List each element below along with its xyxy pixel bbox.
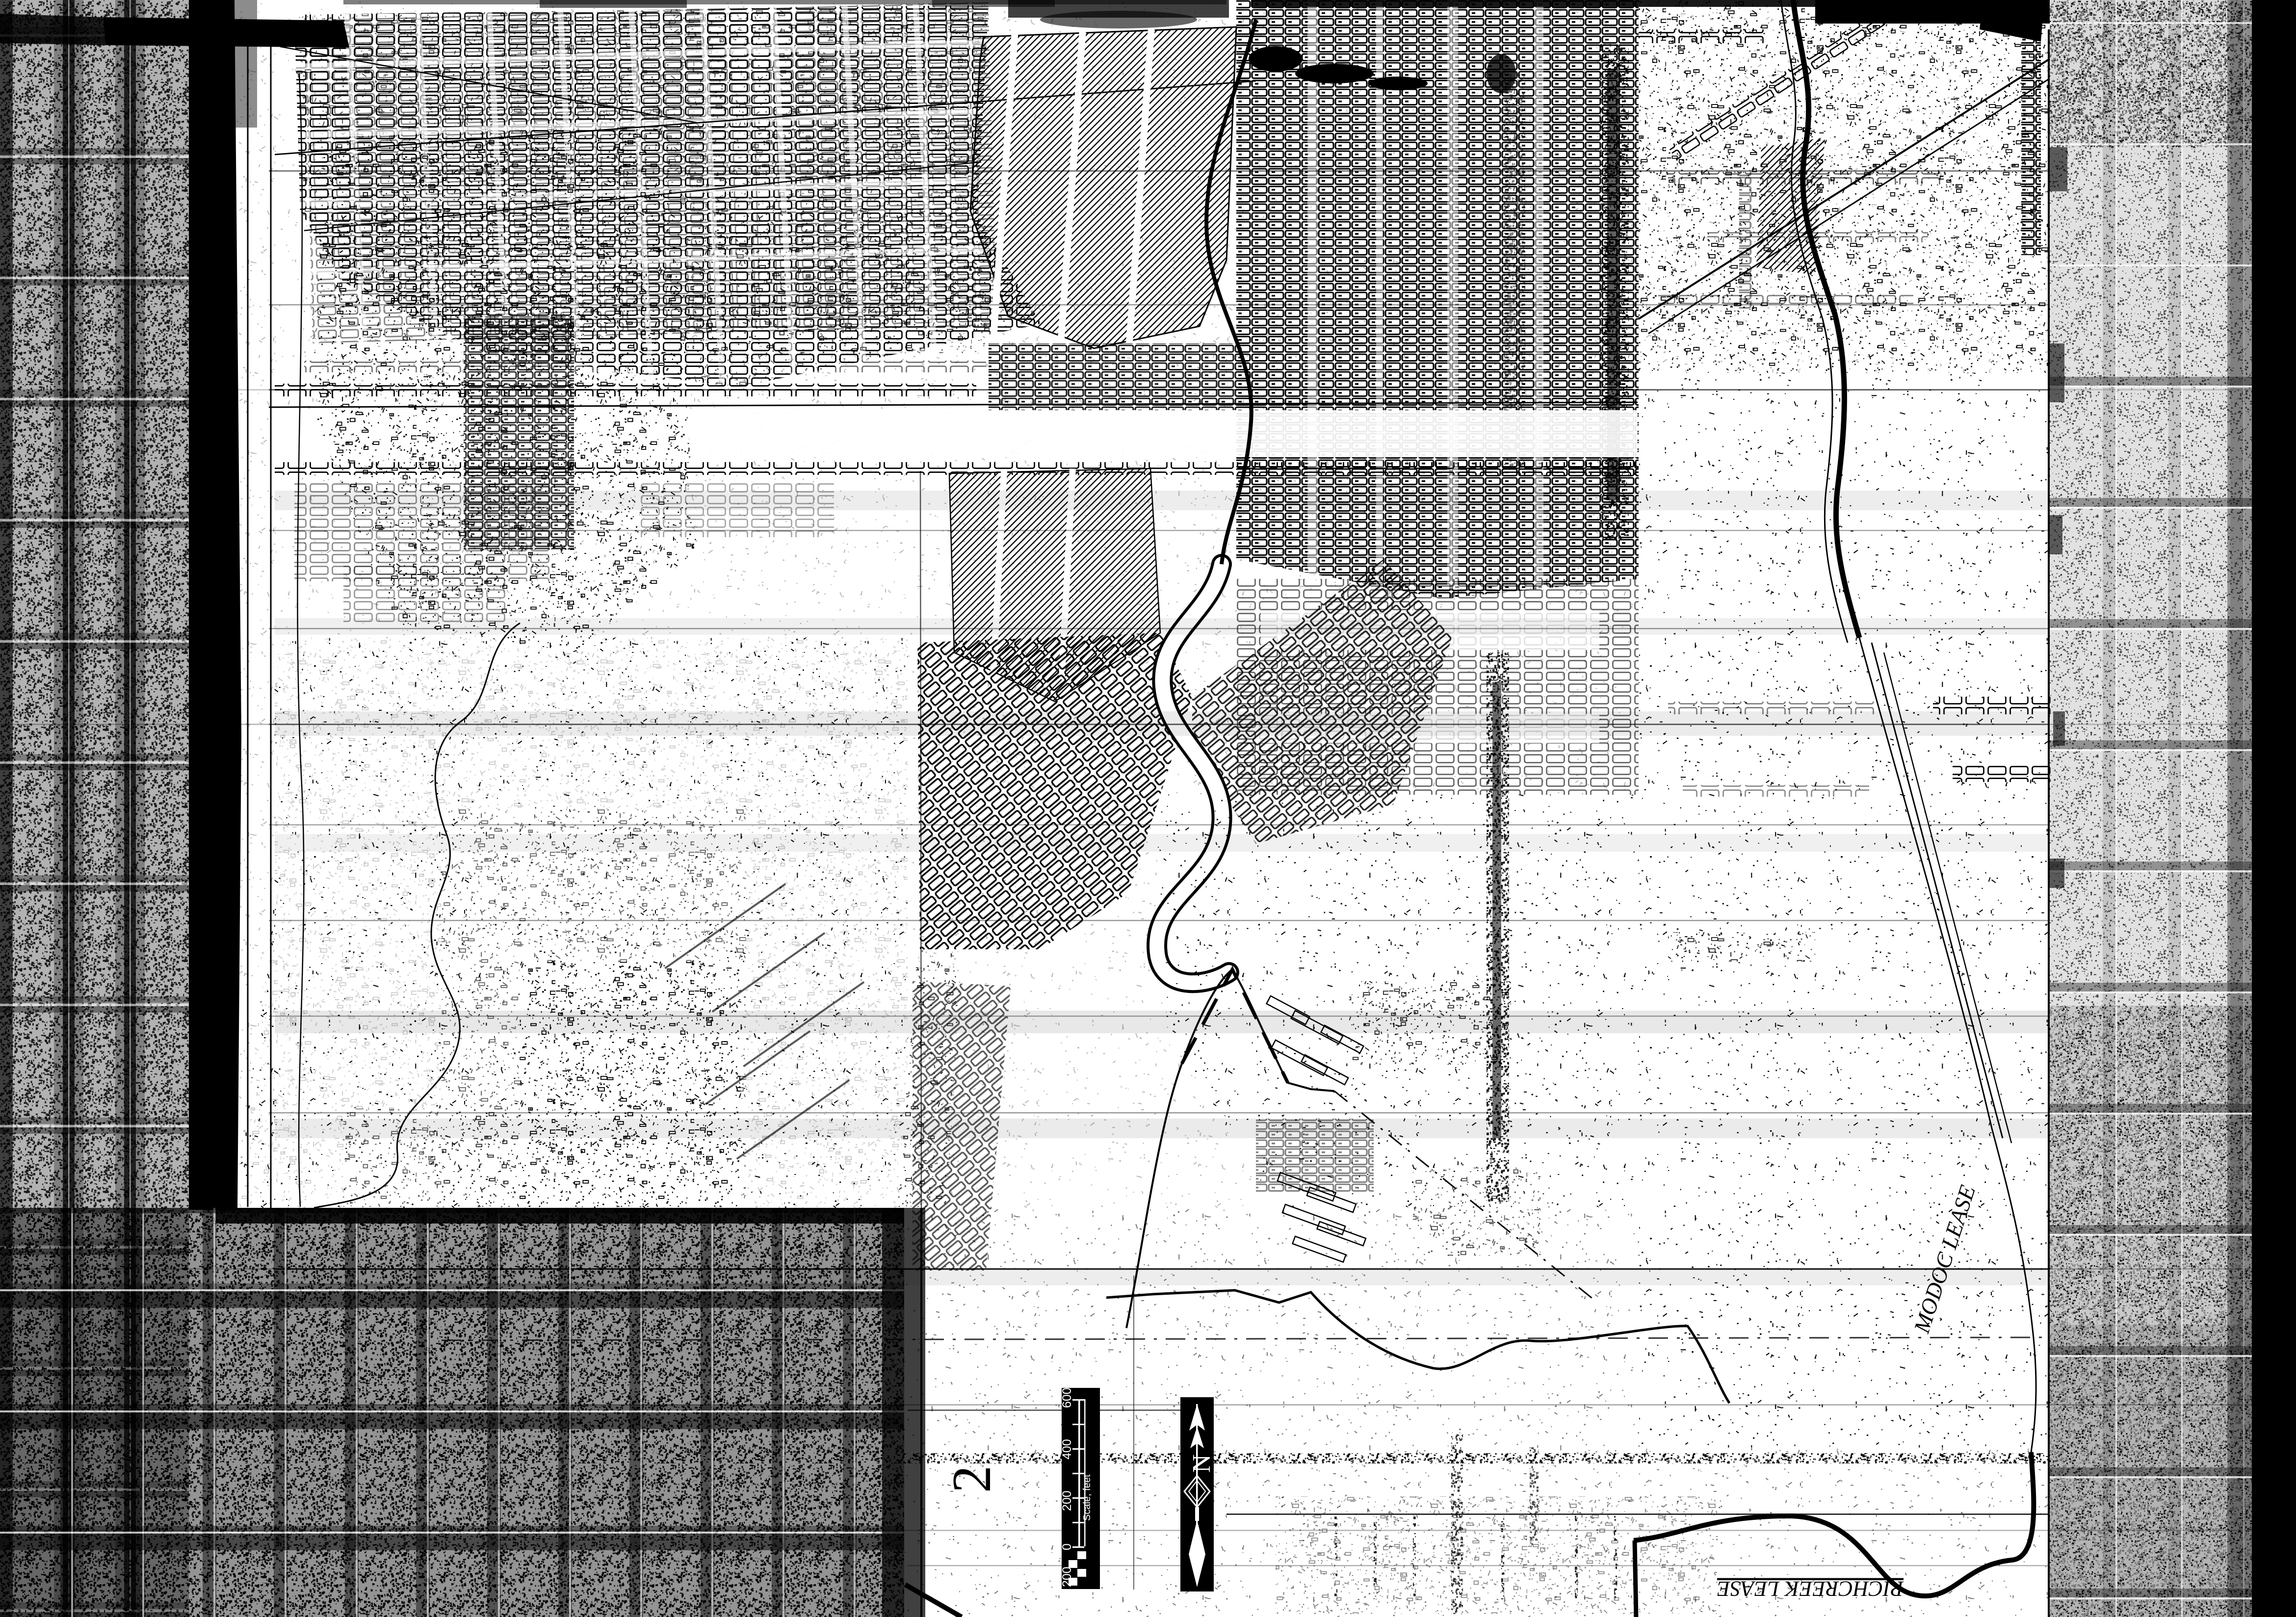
svg-text:200: 200 xyxy=(1060,1566,1074,1587)
svg-text:2: 2 xyxy=(941,1465,1002,1493)
svg-text:Scale, feet: Scale, feet xyxy=(1082,1474,1093,1521)
svg-text:600: 600 xyxy=(1060,1387,1074,1408)
svg-text:200: 200 xyxy=(1060,1490,1074,1511)
svg-text:400: 400 xyxy=(1060,1439,1074,1460)
svg-text:0: 0 xyxy=(1060,1543,1074,1550)
svg-text:RICHCREEK LEASE: RICHCREEK LEASE xyxy=(1717,1577,1904,1601)
svg-text:N: N xyxy=(1188,1454,1216,1473)
